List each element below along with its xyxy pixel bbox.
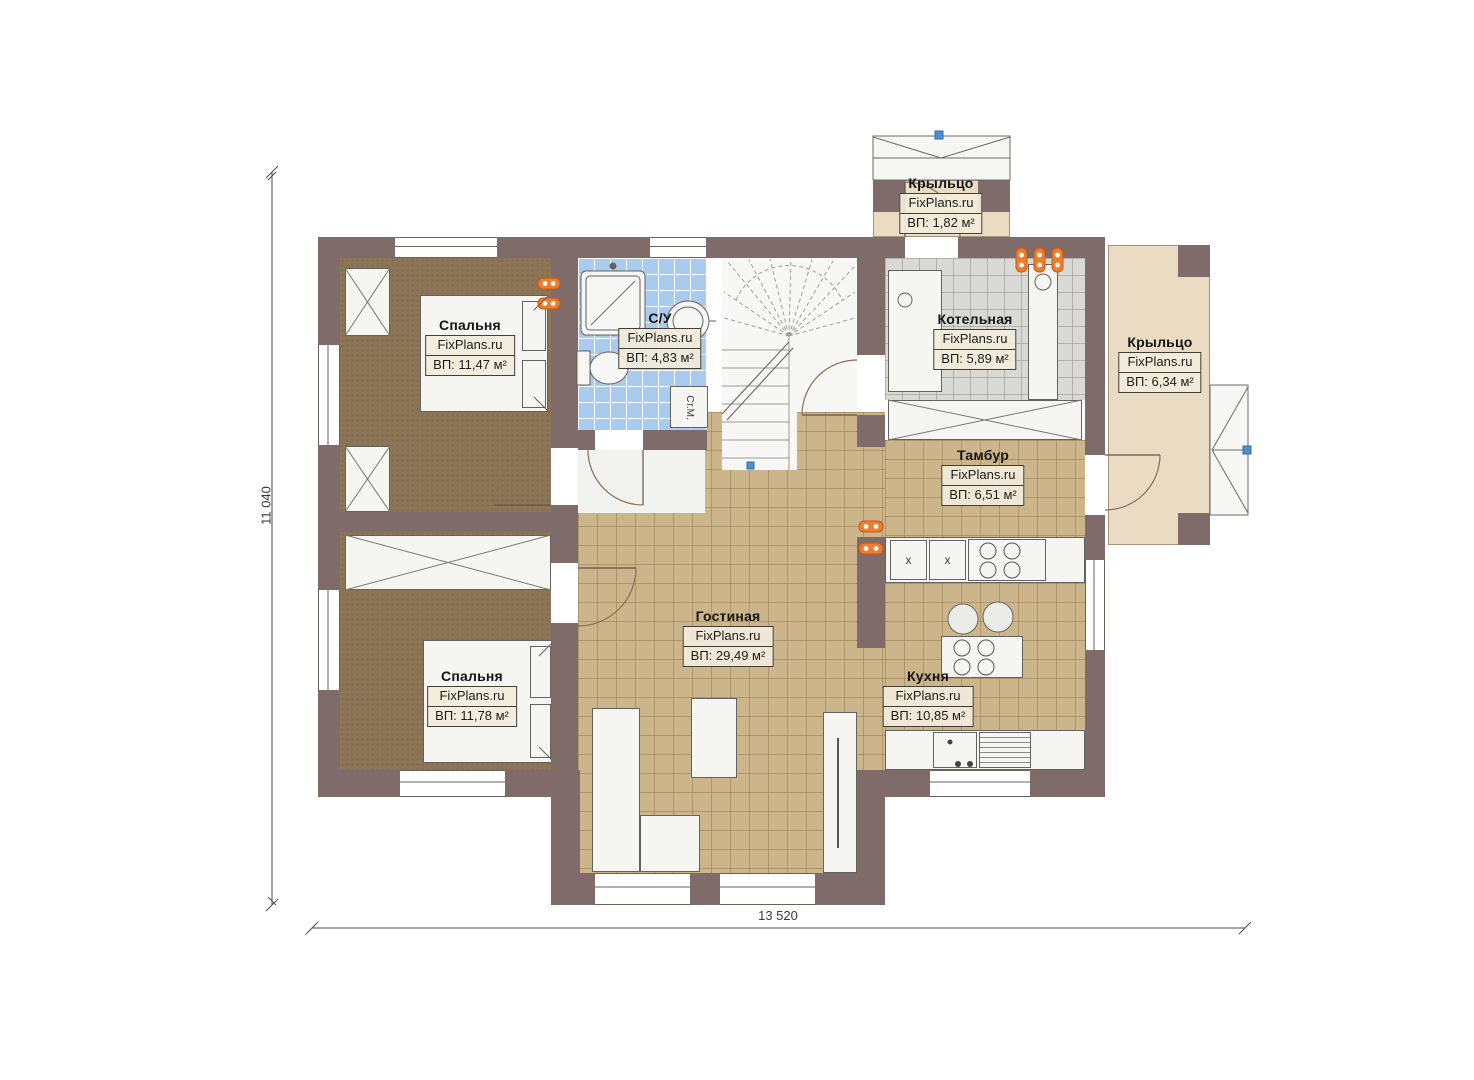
room-area: ВП: 6,51 м² — [942, 485, 1023, 505]
room-area: ВП: 11,47 м² — [426, 355, 514, 375]
watermark-text: FixPlans.ru — [942, 466, 1023, 485]
bed-2-pillow — [530, 704, 551, 758]
wall-interior-v2c — [857, 537, 885, 648]
floor-stair-hall — [722, 258, 857, 412]
porch-right-column-top — [1178, 245, 1210, 277]
stove-counter — [968, 539, 1046, 581]
bed-1-pillow — [522, 301, 546, 351]
room-name: Спальня — [427, 668, 517, 684]
sofa-vertical — [592, 708, 640, 872]
room-label-porch-top: Крыльцо FixPlans.ru ВП: 1,82 м² — [899, 175, 982, 234]
room-area: ВП: 5,89 м² — [934, 349, 1015, 369]
coffee-table — [691, 698, 737, 778]
window-top-bathroom — [650, 237, 706, 258]
room-name: Гостиная — [683, 608, 774, 624]
washing-machine: Ст.М. — [670, 386, 708, 428]
room-info-box: FixPlans.ru ВП: 29,49 м² — [683, 626, 774, 667]
room-label-porch-right: Крыльцо FixPlans.ru ВП: 6,34 м² — [1118, 334, 1201, 393]
window-bottom-bedroom-2 — [400, 770, 505, 797]
bed-2-pillow — [530, 646, 551, 698]
wall-interior-v1a — [551, 258, 578, 448]
floor-plan-canvas: Ст.М. x x — [0, 0, 1474, 1080]
watermark-text: FixPlans.ru — [619, 329, 700, 348]
kitchen-cabinet-1: x — [890, 540, 927, 580]
wall-interior-v2b — [857, 415, 885, 447]
room-label-bedroom-1: Спальня FixPlans.ru ВП: 11,47 м² — [425, 317, 515, 376]
porch-top-steps-icon — [873, 136, 1010, 180]
watermark-text: FixPlans.ru — [900, 194, 981, 213]
washing-machine-label: Ст.М. — [684, 395, 695, 420]
room-info-box: FixPlans.ru ВП: 4,83 м² — [618, 328, 701, 369]
room-name: Крыльцо — [1118, 334, 1201, 350]
watermark-text: FixPlans.ru — [884, 687, 973, 706]
room-label-bathroom: С/У FixPlans.ru ВП: 4,83 м² — [618, 310, 701, 369]
wardrobe-vestibule — [888, 400, 1082, 440]
room-label-vestibule: Тамбур FixPlans.ru ВП: 6,51 м² — [941, 447, 1024, 506]
window-left-bedroom-1 — [318, 345, 340, 445]
porch-top-column-right — [978, 180, 1010, 212]
door-opening-bathroom — [595, 430, 643, 450]
cabinet-mark: x — [906, 553, 912, 567]
dimension-vertical: 11 040 — [259, 466, 274, 546]
dishwasher — [979, 732, 1031, 768]
floor-stair-flight — [722, 412, 797, 470]
door-opening-porch-right — [1085, 455, 1105, 515]
porch-right-steps-icon — [1210, 385, 1248, 515]
room-area: ВП: 6,34 м² — [1119, 372, 1200, 392]
watermark-text: FixPlans.ru — [684, 627, 773, 646]
room-info-box: FixPlans.ru ВП: 6,34 м² — [1118, 352, 1201, 393]
floor-porch-right — [1108, 245, 1210, 545]
room-label-kitchen: Кухня FixPlans.ru ВП: 10,85 м² — [883, 668, 974, 727]
wall-between-bedrooms — [340, 512, 551, 532]
wall-interior-v1c — [551, 623, 578, 770]
wall-left — [318, 237, 340, 797]
room-label-boiler-room: Котельная FixPlans.ru ВП: 5,89 м² — [933, 311, 1016, 370]
room-name: Котельная — [933, 311, 1016, 327]
room-name: С/У — [618, 310, 701, 326]
room-area: ВП: 29,49 м² — [684, 646, 773, 666]
room-area: ВП: 11,78 м² — [428, 706, 516, 726]
window-bottom-living-2 — [720, 873, 815, 905]
sofa-corner — [640, 815, 700, 872]
window-right-kitchen — [1085, 560, 1105, 650]
window-bottom-living-1 — [595, 873, 690, 905]
dimension-horizontal: 13 520 — [733, 908, 823, 923]
room-info-box: FixPlans.ru ВП: 6,51 м² — [941, 465, 1024, 506]
room-label-bedroom-2: Спальня FixPlans.ru ВП: 11,78 м² — [427, 668, 517, 727]
wall-living-right-step — [857, 770, 885, 905]
door-opening-porch-top — [905, 237, 958, 258]
watermark-text: FixPlans.ru — [428, 687, 516, 706]
room-name: Тамбур — [941, 447, 1024, 463]
window-bottom-kitchen — [930, 770, 1030, 797]
tv-cabinet — [823, 712, 857, 873]
porch-right-column-bottom — [1178, 513, 1210, 545]
wall-right — [1085, 237, 1105, 797]
bed-1-pillow — [522, 360, 546, 408]
watermark-text: FixPlans.ru — [934, 330, 1015, 349]
cabinet-mark: x — [945, 553, 951, 567]
wardrobe-bedroom-1-bottom — [345, 446, 390, 512]
boiler-unit — [1028, 264, 1058, 400]
room-info-box: FixPlans.ru ВП: 1,82 м² — [899, 193, 982, 234]
room-name: Кухня — [883, 668, 974, 684]
watermark-text: FixPlans.ru — [426, 336, 514, 355]
wall-interior-v1b — [551, 505, 578, 563]
room-label-living-room: Гостиная FixPlans.ru ВП: 29,49 м² — [683, 608, 774, 667]
window-top-bedroom-1 — [395, 237, 497, 258]
kitchen-cabinet-2: x — [929, 540, 966, 580]
room-info-box: FixPlans.ru ВП: 11,78 м² — [427, 686, 517, 727]
watermark-text: FixPlans.ru — [1119, 353, 1200, 372]
window-left-bedroom-2 — [318, 590, 340, 690]
wardrobe-bedroom-2 — [345, 535, 551, 590]
floor-hall-corridor — [578, 450, 705, 513]
wall-interior-v2a — [857, 237, 885, 355]
room-name: Крыльцо — [899, 175, 982, 191]
room-area: ВП: 10,85 м² — [884, 706, 973, 726]
room-info-box: FixPlans.ru ВП: 10,85 м² — [883, 686, 974, 727]
room-area: ВП: 1,82 м² — [900, 213, 981, 233]
room-info-box: FixPlans.ru ВП: 5,89 м² — [933, 329, 1016, 370]
room-info-box: FixPlans.ru ВП: 11,47 м² — [425, 335, 515, 376]
wardrobe-bedroom-1-top — [345, 268, 390, 336]
kitchen-sink — [933, 732, 977, 768]
room-area: ВП: 4,83 м² — [619, 348, 700, 368]
room-name: Спальня — [425, 317, 515, 333]
